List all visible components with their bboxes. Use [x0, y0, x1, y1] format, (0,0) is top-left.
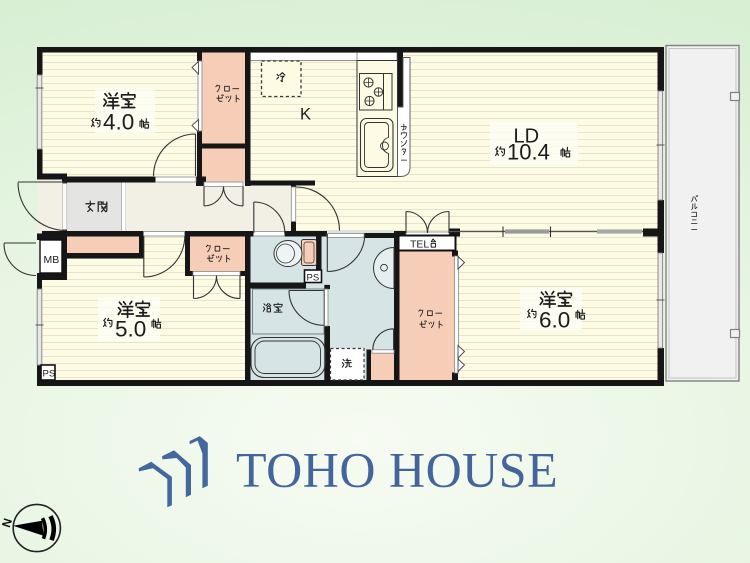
svg-text:5.0: 5.0 — [115, 317, 146, 342]
svg-text:N: N — [0, 517, 15, 530]
svg-text:10.4: 10.4 — [507, 140, 550, 165]
svg-text:PS: PS — [43, 369, 56, 380]
svg-text:4.0: 4.0 — [103, 110, 134, 135]
svg-text:6.0: 6.0 — [539, 308, 570, 333]
svg-text:PS: PS — [307, 273, 320, 284]
svg-text:TOHO HOUSE: TOHO HOUSE — [236, 442, 558, 498]
svg-text:K: K — [300, 106, 311, 124]
svg-text:MB: MB — [44, 254, 60, 266]
svg-text:TEL: TEL — [410, 239, 429, 251]
